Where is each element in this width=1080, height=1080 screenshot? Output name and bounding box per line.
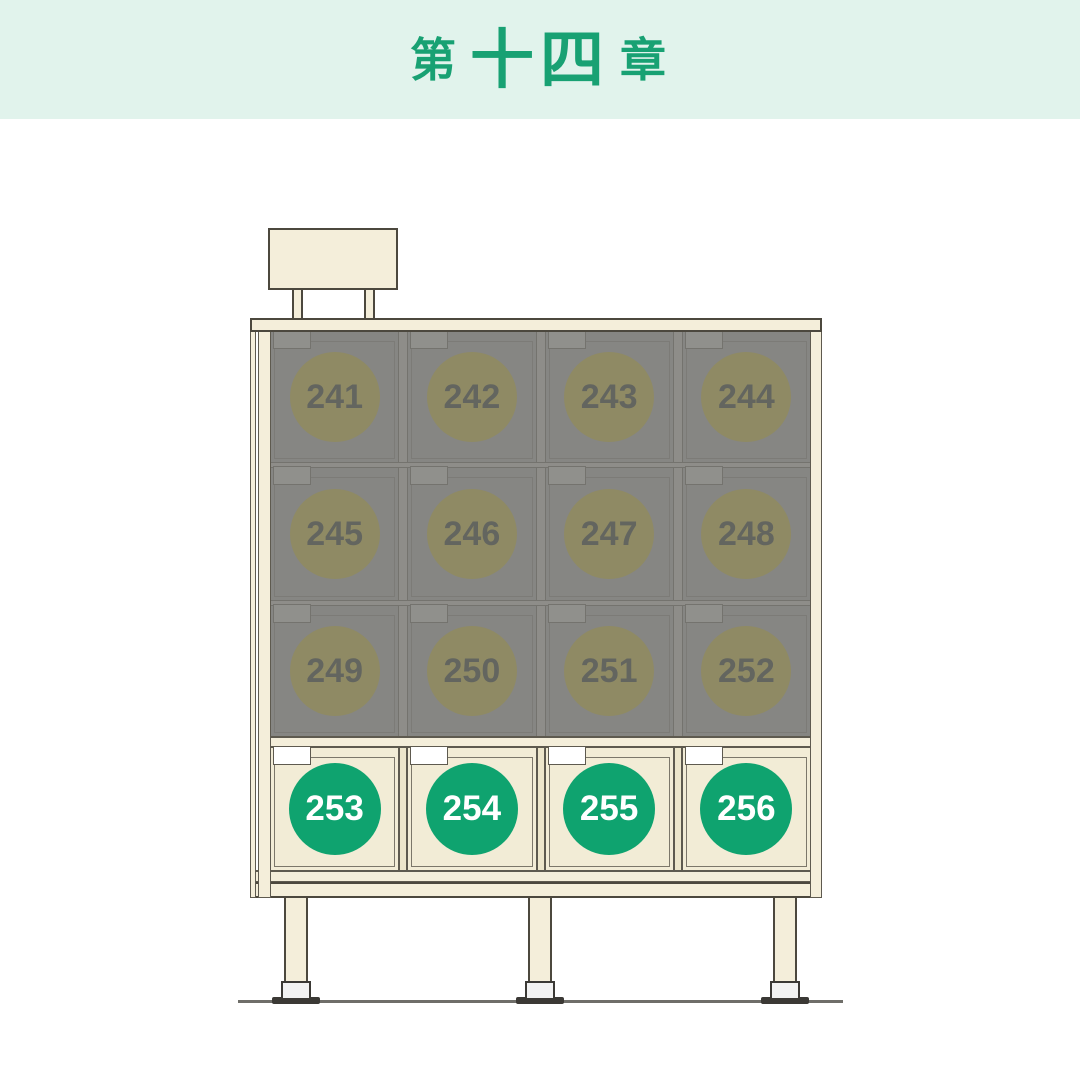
chapter-badge: 253 <box>289 763 381 855</box>
locker-number: 247 <box>581 515 638 554</box>
label-tab <box>273 466 311 485</box>
label-tab <box>273 330 311 349</box>
divider-post <box>398 748 408 870</box>
divider-post <box>673 468 683 600</box>
locker-cell-253[interactable]: 253 <box>271 748 398 870</box>
locker-row-2: 245 246 247 <box>271 468 810 600</box>
chapter-suffix: 章 <box>620 37 670 83</box>
locker-number: 250 <box>444 652 501 691</box>
locker-number: 255 <box>580 789 638 829</box>
locker-cell-243: 243 <box>546 332 673 462</box>
locker-cell-250: 250 <box>408 606 535 736</box>
label-tab <box>410 330 448 349</box>
locker-cell-247: 247 <box>546 468 673 600</box>
chapter-number: 十四 <box>470 28 610 92</box>
locker-cell-245: 245 <box>271 468 398 600</box>
divider-post <box>398 332 408 462</box>
cabinet-leg-middle <box>528 898 552 983</box>
chapter-badge: 256 <box>700 763 792 855</box>
chapter-badge-dimmed: 249 <box>290 626 380 716</box>
locker-cell-256[interactable]: 256 <box>683 748 810 870</box>
locker-number: 243 <box>581 378 638 417</box>
locker-row-3: 249 250 251 <box>271 606 810 736</box>
divider-post <box>398 468 408 600</box>
locker-number: 251 <box>581 652 638 691</box>
locker-number: 256 <box>717 789 775 829</box>
chapter-badge-dimmed: 252 <box>701 626 791 716</box>
label-tab <box>273 604 311 623</box>
locker-cell-248: 248 <box>683 468 810 600</box>
sign-leg-right <box>364 290 375 320</box>
divider-post <box>536 332 546 462</box>
cabinet-interior: 241 242 243 <box>271 332 810 870</box>
locker-number: 241 <box>306 378 363 417</box>
cabinet-top-sign <box>268 228 398 290</box>
label-tab <box>685 746 723 765</box>
locker-number: 254 <box>443 789 501 829</box>
label-tab <box>685 604 723 623</box>
divider-post <box>673 332 683 462</box>
chapter-badge: 254 <box>426 763 518 855</box>
divider-post <box>536 468 546 600</box>
cabinet-top-rail <box>250 318 822 332</box>
chapter-prefix: 第 <box>410 37 460 83</box>
leg-foot <box>281 981 311 1000</box>
chapter-badge: 255 <box>563 763 655 855</box>
locker-number: 248 <box>718 515 775 554</box>
chapter-badge-dimmed: 251 <box>564 626 654 716</box>
divider-post <box>673 748 683 870</box>
locker-cell-242: 242 <box>408 332 535 462</box>
leg-foot <box>525 981 555 1000</box>
chapter-badge-dimmed: 242 <box>427 352 517 442</box>
label-tab <box>410 604 448 623</box>
locker-number: 252 <box>718 652 775 691</box>
cabinet-left-post <box>258 320 271 898</box>
chapter-badge-dimmed: 243 <box>564 352 654 442</box>
label-tab <box>410 746 448 765</box>
locker-number: 245 <box>306 515 363 554</box>
divider-post <box>398 606 408 736</box>
cabinet-leg-right <box>773 898 797 983</box>
chapter-badge-dimmed: 248 <box>701 489 791 579</box>
label-tab <box>410 466 448 485</box>
label-tab <box>685 466 723 485</box>
chapter-title: 第 十四 章 <box>410 28 670 92</box>
label-tab <box>548 746 586 765</box>
cabinet-left-plank <box>250 320 256 898</box>
locker-cell-241: 241 <box>271 332 398 462</box>
locker-cell-255[interactable]: 255 <box>546 748 673 870</box>
label-tab <box>548 330 586 349</box>
cabinet-right-post <box>810 320 822 898</box>
label-tab <box>273 746 311 765</box>
locker-cell-249: 249 <box>271 606 398 736</box>
label-tab <box>548 604 586 623</box>
leg-foot <box>770 981 800 1000</box>
locker-cell-246: 246 <box>408 468 535 600</box>
locker-number: 246 <box>444 515 501 554</box>
shelf-rail <box>271 736 810 748</box>
locker-number: 249 <box>306 652 363 691</box>
chapter-badge-dimmed: 245 <box>290 489 380 579</box>
page: 第 十四 章 241 <box>0 0 1080 1080</box>
locker-number: 244 <box>718 378 775 417</box>
divider-post <box>536 748 546 870</box>
locker-row-4: 253 254 255 <box>271 748 810 870</box>
label-tab <box>548 466 586 485</box>
locker-cell-252: 252 <box>683 606 810 736</box>
divider-post <box>536 606 546 736</box>
divider-post <box>673 606 683 736</box>
chapter-badge-dimmed: 250 <box>427 626 517 716</box>
cabinet-bottom-board <box>252 882 820 898</box>
locker-scene: 241 242 243 <box>0 119 1080 1080</box>
chapter-badge-dimmed: 244 <box>701 352 791 442</box>
chapter-badge-dimmed: 247 <box>564 489 654 579</box>
label-tab <box>685 330 723 349</box>
locker-number: 242 <box>444 378 501 417</box>
locker-cell-254[interactable]: 254 <box>408 748 535 870</box>
locker-cell-244: 244 <box>683 332 810 462</box>
chapter-badge-dimmed: 246 <box>427 489 517 579</box>
locker-row-1: 241 242 243 <box>271 332 810 462</box>
locker-number: 253 <box>305 789 363 829</box>
cabinet-leg-left <box>284 898 308 983</box>
sign-leg-left <box>292 290 303 320</box>
chapter-badge-dimmed: 241 <box>290 352 380 442</box>
locker-cell-251: 251 <box>546 606 673 736</box>
locker-cabinet: 241 242 243 <box>250 318 822 898</box>
chapter-banner: 第 十四 章 <box>0 0 1080 119</box>
